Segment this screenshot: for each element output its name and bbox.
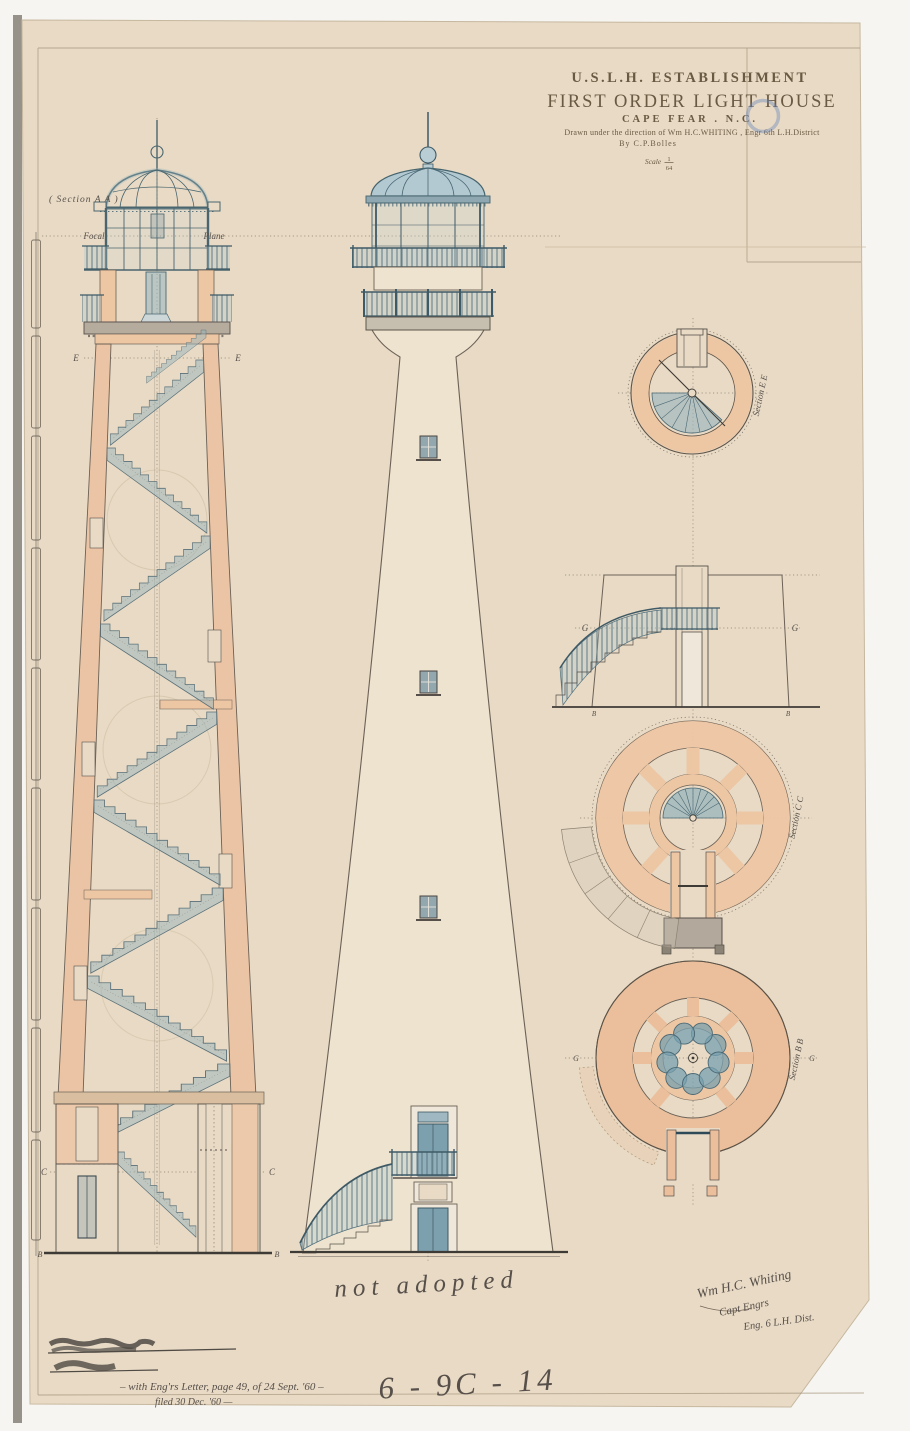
label-section-aa: ( Section A A ) <box>49 194 119 205</box>
credit-line: Drawn under the direction of Wm H.C.WHIT… <box>564 128 820 137</box>
drawing-title: FIRST ORDER LIGHT HOUSE <box>547 92 836 112</box>
lighthouse-drawing: U.S.L.H. ESTABLISHMENT FIRST ORDER LIGHT… <box>0 0 910 1431</box>
lantern-gallery-railing <box>352 248 505 268</box>
label-plane: Plane <box>203 231 225 241</box>
gallery-deck <box>366 317 490 330</box>
label-g-plan-right: G <box>809 1054 815 1063</box>
scale-label: Scale <box>645 157 662 166</box>
base-doorway <box>682 632 702 707</box>
filed-note: filed 30 Dec. '60 — <box>155 1397 233 1408</box>
establishment-title: U.S.L.H. ESTABLISHMENT <box>571 70 808 86</box>
draftsman-line: By C.P.Bolles <box>619 139 677 148</box>
filing-note: – with Eng'rs Letter, page 49, of 24 Sep… <box>119 1381 324 1393</box>
section-watch-room <box>80 270 234 344</box>
label-g-plan-left: G <box>573 1054 579 1063</box>
sheet-left-edge-shadow <box>13 15 22 1423</box>
gallery-corbel-band <box>84 322 230 334</box>
label-c-left: C <box>41 1167 48 1177</box>
label-elev-corner-right: B <box>786 710 791 718</box>
label-e-right: E <box>234 353 241 363</box>
label-g-elev-left: G <box>582 623 589 633</box>
label-focal: Focal <box>83 231 105 241</box>
scale-numerator: 1 <box>667 156 670 163</box>
label-e-left: E <box>72 353 79 363</box>
scale-denominator: 64 <box>666 165 673 172</box>
label-elev-corner-left: B <box>592 710 597 718</box>
label-b-left: B <box>38 1250 43 1259</box>
base-window <box>419 1184 447 1200</box>
location-title: CAPE FEAR . N.C. <box>622 114 758 125</box>
label-c-right: C <box>269 1167 276 1177</box>
label-b-right: B <box>275 1250 280 1259</box>
label-g-elev-right: G <box>792 623 799 633</box>
lens-pedestal <box>146 272 166 318</box>
scanned-drawing-page: U.S.L.H. ESTABLISHMENT FIRST ORDER LIGHT… <box>0 0 910 1431</box>
